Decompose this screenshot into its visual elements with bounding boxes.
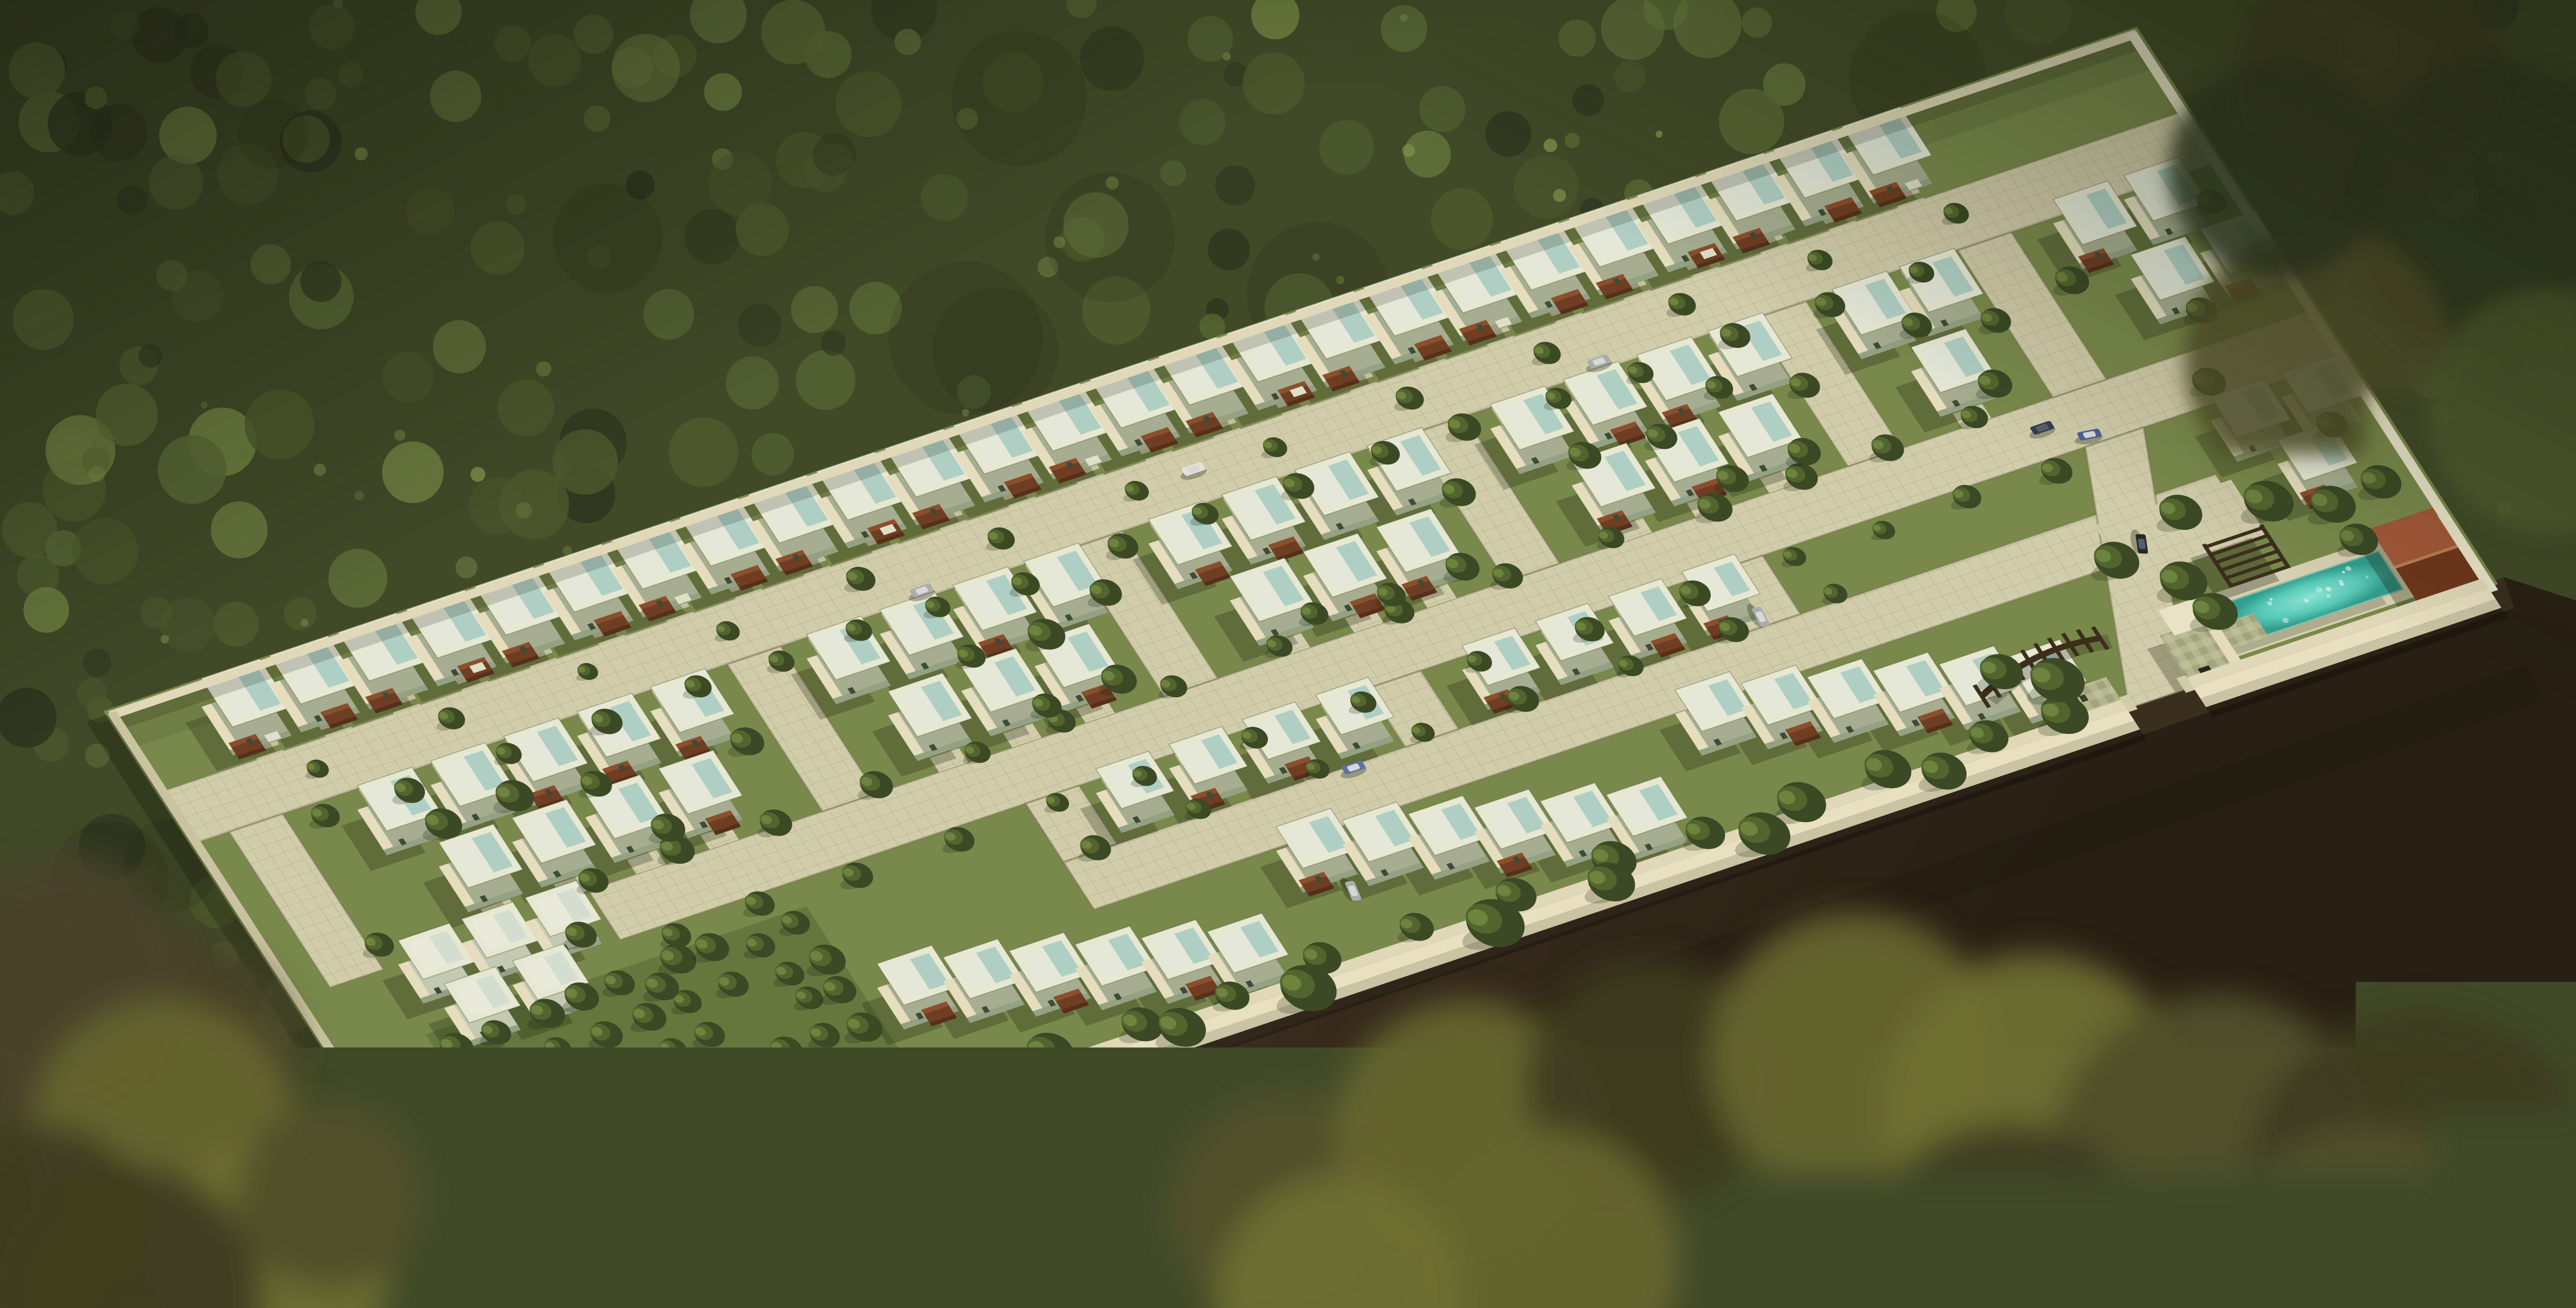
scene-render: Aerial 3D render of a gated residential … <box>0 0 2576 1308</box>
viewport: Aerial 3D render of a gated residential … <box>0 0 2576 1308</box>
warm-tint <box>0 0 2576 1308</box>
vignette-overlay <box>0 0 2576 1308</box>
